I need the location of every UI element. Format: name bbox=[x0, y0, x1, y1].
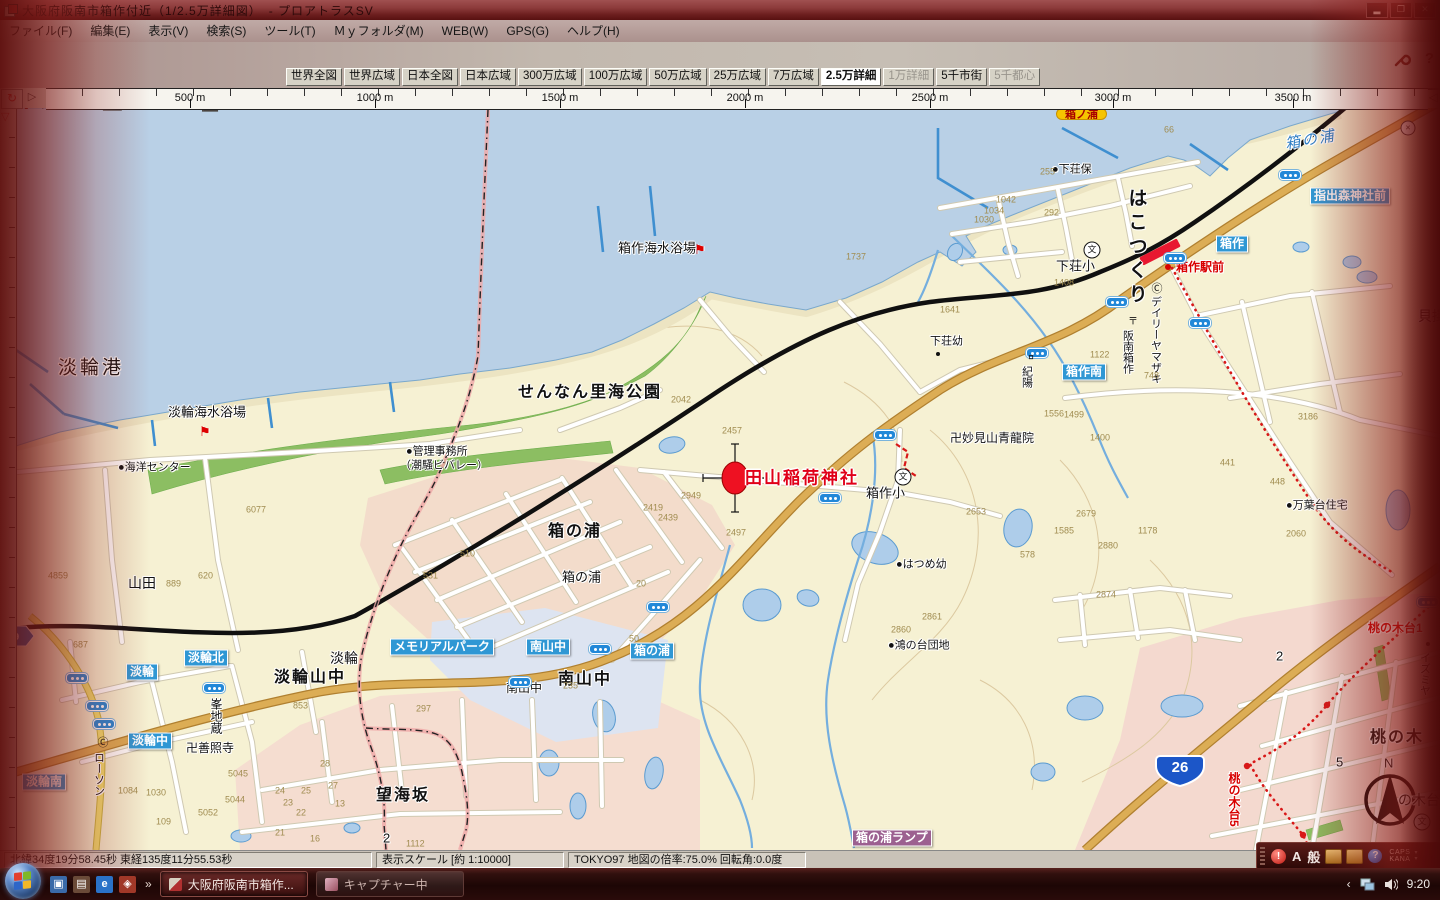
map-labels-layer: 淡輪港淡輪海水浴場箱作海水浴場せんなん里海公園●海洋センター●管理事務所（潮騒ビ… bbox=[0, 108, 1440, 850]
ime-conversion-mode[interactable]: 般 bbox=[1307, 847, 1320, 866]
lot-number: 5052 bbox=[198, 809, 218, 818]
lot-number: 292 bbox=[1044, 209, 1059, 218]
map-label: 2 bbox=[383, 832, 390, 845]
facility-dot-icon bbox=[1426, 642, 1430, 646]
busstop-badge: 指出森神社前 bbox=[1310, 188, 1390, 205]
lot-number: 1556 bbox=[1044, 410, 1064, 419]
bus-stop-icon bbox=[1106, 297, 1128, 307]
help-icon[interactable]: ? bbox=[1425, 50, 1434, 68]
lot-number: 24 bbox=[275, 787, 285, 796]
map-label: （潮騒ビバレー） bbox=[400, 461, 488, 472]
lot-number: 66 bbox=[1164, 126, 1174, 135]
bus-stop-icon bbox=[1164, 253, 1186, 263]
beach-flag-icon: ⚑ bbox=[694, 242, 706, 258]
menu-item-5[interactable]: Ｍｙフォルダ(M) bbox=[325, 21, 433, 42]
gps-point-icon: × bbox=[1401, 121, 1416, 136]
scale-tab-1万詳細: 1万詳細 bbox=[883, 68, 934, 86]
taskbar: ▣ ▤ e ◈ » 大阪府阪南市箱作...キャプチャー中 ‹ 9:20 bbox=[0, 868, 1440, 900]
map-label: ●鴻の台団地 bbox=[888, 641, 950, 652]
lot-number: 578 bbox=[1020, 551, 1035, 560]
lot-number: 1084 bbox=[118, 787, 138, 796]
internet-explorer-icon[interactable]: e bbox=[96, 876, 113, 893]
busstop-badge: 淡輪南 bbox=[22, 774, 66, 791]
lot-number: 28 bbox=[320, 760, 330, 769]
scale-tab-300万広域[interactable]: 300万広域 bbox=[518, 68, 582, 86]
lot-number: 21 bbox=[275, 829, 285, 838]
lot-number: 853 bbox=[293, 702, 308, 711]
scale-tab-bar: 世界全図世界広域日本全図日本広域300万広域100万広域50万広域25万広域7万… bbox=[286, 68, 1042, 86]
lot-number: 2880 bbox=[1098, 542, 1118, 551]
school-icon: 文 bbox=[1414, 814, 1431, 831]
ime-pad-icon[interactable] bbox=[1346, 849, 1363, 864]
station-front-dot-icon bbox=[1165, 264, 1171, 270]
lot-number: 1030 bbox=[974, 216, 994, 225]
scale-tab-50万広域[interactable]: 50万広域 bbox=[649, 68, 706, 86]
beach-flag-icon: ⚑ bbox=[199, 424, 211, 440]
task-icon bbox=[169, 878, 182, 891]
map-label: ●管理事務所 bbox=[406, 447, 468, 458]
lot-number: 1499 bbox=[1064, 411, 1084, 420]
lot-number: 2060 bbox=[1286, 530, 1306, 539]
menu-item-7[interactable]: GPS(G) bbox=[497, 21, 558, 42]
busstop-badge: 南山中 bbox=[526, 639, 570, 656]
school-icon: 文 bbox=[1084, 242, 1101, 259]
map-label: 下荘小 bbox=[1056, 260, 1095, 273]
map-label: ●万葉台住宅 bbox=[1286, 501, 1348, 512]
map-label: 桃の木台1 bbox=[1368, 622, 1423, 634]
lot-number: 510 bbox=[460, 550, 475, 559]
scale-tab-100万広域[interactable]: 100万広域 bbox=[584, 68, 648, 86]
pan-right-button[interactable]: ▷ bbox=[24, 89, 40, 107]
lot-number: 2497 bbox=[726, 529, 746, 538]
map-label: ●海洋センター bbox=[118, 463, 191, 474]
convenience-store-icon: Ⓒ bbox=[98, 734, 109, 750]
task-icon bbox=[325, 878, 338, 891]
media-icon[interactable]: ◈ bbox=[119, 876, 136, 893]
convenience-store-icon: Ⓒ bbox=[1152, 280, 1163, 296]
map-label: 山田 bbox=[128, 576, 156, 590]
scale-tab-5千市街[interactable]: 5千市街 bbox=[936, 68, 987, 86]
app-icon bbox=[4, 4, 17, 17]
title-bar: 大阪府阪南市箱作付近（1/2.5万詳細図） - プロアトラスSV ▂ ❐ ✕ bbox=[0, 0, 1440, 20]
lot-number: 16 bbox=[310, 835, 320, 844]
lot-number: 1042 bbox=[996, 196, 1016, 205]
map-label: の木台 bbox=[1398, 793, 1440, 807]
lot-number: 2874 bbox=[1096, 591, 1116, 600]
map-label: 卍妙見山青龍院 bbox=[950, 432, 1034, 444]
map-label: 淡輪 bbox=[330, 651, 358, 665]
lot-number: 23 bbox=[283, 799, 293, 808]
lot-number: 25 bbox=[301, 787, 311, 796]
vertical-ruler bbox=[0, 108, 17, 850]
map-viewport[interactable]: 2659 淡輪港淡輪海水浴場箱作海水浴場せんなん里海公園●海洋センター●管理事務… bbox=[0, 108, 1440, 850]
map-label: 貝掛 bbox=[1418, 309, 1440, 323]
lot-number: 448 bbox=[1270, 478, 1285, 487]
task-button-1[interactable]: キャプチャー中 bbox=[316, 871, 464, 897]
lot-number: 1408 bbox=[1054, 279, 1074, 288]
ime-language-bar: ! A 般 ? CAPS KANA ▾▾ bbox=[1256, 842, 1440, 870]
busstop-badge: 箱の浦ランプ bbox=[852, 830, 932, 847]
lot-number: 109 bbox=[156, 818, 171, 827]
menu-bar: ファイル(F)編集(E)表示(V)検索(S)ツール(T)Ｍｙフォルダ(M)WEB… bbox=[0, 20, 1440, 43]
kana-indicator[interactable]: KANA bbox=[1389, 856, 1410, 863]
tray-collapse-icon[interactable]: ‹ bbox=[1347, 877, 1351, 891]
map-label: 箱の浦 bbox=[548, 524, 602, 540]
bus-stop-icon bbox=[203, 683, 225, 693]
menu-item-1[interactable]: 編集(E) bbox=[81, 21, 139, 42]
maximize-button[interactable]: ❐ bbox=[1390, 2, 1412, 18]
menu-item-6[interactable]: WEB(W) bbox=[433, 21, 498, 42]
lot-number: 1178 bbox=[1138, 527, 1157, 536]
lot-number: 2457 bbox=[722, 427, 742, 436]
map-label: ●はつめ幼 bbox=[896, 560, 947, 571]
bus-stop-icon bbox=[1417, 597, 1439, 607]
bus-stop-icon bbox=[66, 673, 88, 683]
busstop-badge: 箱作南 bbox=[1062, 364, 1106, 381]
map-label: 2 bbox=[1276, 650, 1283, 663]
ime-grip[interactable] bbox=[1260, 847, 1265, 865]
busstop-badge: 箱の浦 bbox=[630, 643, 674, 660]
lot-number: 1112 bbox=[406, 840, 425, 849]
network-icon[interactable] bbox=[1360, 878, 1375, 891]
lot-number: 6077 bbox=[246, 506, 266, 515]
busstop-badge: 箱作 bbox=[1216, 236, 1248, 253]
lot-number: 441 bbox=[1220, 459, 1235, 468]
ime-minimize-icon[interactable]: ▾▾ bbox=[1414, 850, 1417, 862]
ime-help-icon[interactable]: ? bbox=[1368, 849, 1382, 863]
show-desktop-icon[interactable]: ▣ bbox=[50, 876, 67, 893]
bank-icon: ¤ bbox=[1028, 353, 1034, 364]
start-button[interactable] bbox=[5, 863, 41, 899]
status-scale: 表示スケール [約 1:10000] bbox=[376, 852, 564, 868]
lot-number: 2861 bbox=[922, 613, 942, 622]
map-label: 箱の浦 bbox=[1284, 128, 1337, 152]
minimize-button[interactable]: ▂ bbox=[1366, 2, 1388, 18]
map-label: 箱作海水浴場 bbox=[618, 242, 696, 255]
scale-tab-7万広域[interactable]: 7万広域 bbox=[768, 68, 819, 86]
lot-number: 2949 bbox=[681, 492, 701, 501]
busstop-badge: 淡輪中 bbox=[128, 733, 172, 750]
bus-stop-icon bbox=[874, 430, 896, 440]
menu-item-4[interactable]: ツール(T) bbox=[255, 21, 324, 42]
map-label: 阪南箱作 bbox=[1122, 330, 1133, 374]
lot-number: 1122 bbox=[1090, 351, 1109, 360]
map-label: 桃の木台5 bbox=[1228, 772, 1240, 827]
lot-number: 5044 bbox=[225, 796, 245, 805]
ime-tools-icon[interactable] bbox=[1325, 849, 1342, 864]
lot-number: 3186 bbox=[1298, 413, 1318, 422]
menu-item-2[interactable]: 表示(V) bbox=[139, 21, 197, 42]
map-label: 桃の木 bbox=[1370, 730, 1424, 746]
bus-stop-icon bbox=[589, 644, 611, 654]
lot-number: 1030 bbox=[146, 789, 166, 798]
lot-number: 2419 bbox=[643, 504, 663, 513]
map-label: 5 bbox=[1336, 756, 1343, 769]
scale-tab-日本全図[interactable]: 日本全図 bbox=[402, 68, 458, 86]
map-label: イズミヤ bbox=[1419, 652, 1430, 696]
map-label: 峯地蔵 bbox=[210, 698, 222, 734]
pan-down-icon[interactable]: ▽ bbox=[1, 110, 9, 123]
bus-stop-icon bbox=[819, 493, 841, 503]
ime-status-icon[interactable]: ! bbox=[1271, 849, 1286, 864]
menu-item-8[interactable]: ヘルプ(H) bbox=[558, 21, 629, 42]
post-office-icon: 〒 bbox=[1128, 313, 1138, 328]
bus-stop-icon bbox=[1189, 318, 1211, 328]
lot-number: 13 bbox=[335, 800, 345, 809]
busstop-badge: メモリアルパーク bbox=[390, 639, 494, 656]
caps-indicator[interactable]: CAPS bbox=[1389, 849, 1410, 856]
wrench-icon[interactable] bbox=[1393, 50, 1411, 68]
map-label: 紀陽 bbox=[1021, 366, 1032, 388]
status-bar: 北緯34度19分58.45秒 東経135度11分55.53秒表示スケール [約 … bbox=[0, 850, 1440, 869]
lot-number: 687 bbox=[73, 641, 88, 650]
lot-number: 1737 bbox=[846, 253, 866, 262]
map-label: ローソン bbox=[93, 752, 104, 796]
rotate-button[interactable]: ↻ bbox=[1, 89, 23, 109]
lot-number: 2860 bbox=[891, 626, 911, 635]
ruler-left-arrow-icon[interactable]: ◁ bbox=[1429, 90, 1438, 104]
scale-tab-2.5万詳細[interactable]: 2.5万詳細 bbox=[821, 68, 882, 86]
task-button-0[interactable]: 大阪府阪南市箱作... bbox=[160, 871, 308, 897]
bus-stop-icon bbox=[93, 719, 115, 729]
scale-tab-25万広域[interactable]: 25万広域 bbox=[709, 68, 766, 86]
busstop-badge: 淡輪 bbox=[126, 664, 158, 681]
lot-number: 889 bbox=[166, 580, 181, 589]
map-label: 淡輪海水浴場 bbox=[168, 406, 246, 419]
lot-number: 27 bbox=[328, 782, 338, 791]
map-label: 卍善照寺 bbox=[186, 742, 234, 754]
ruler-corner: ↻ ▷ bbox=[0, 88, 46, 108]
lot-number: 297 bbox=[416, 705, 431, 714]
busstop-badge: 淡輪北 bbox=[184, 650, 228, 667]
facility-dot-icon bbox=[936, 352, 940, 356]
lot-number: 531 bbox=[423, 572, 438, 581]
lot-number: 20 bbox=[636, 580, 646, 589]
lot-number: 1641 bbox=[940, 306, 960, 315]
lot-number: 22 bbox=[296, 809, 306, 818]
ime-input-mode[interactable]: A bbox=[1292, 849, 1301, 864]
lot-number: 2042 bbox=[671, 396, 691, 405]
map-label: 箱の浦 bbox=[562, 571, 601, 584]
scale-tab-日本広域[interactable]: 日本広域 bbox=[460, 68, 516, 86]
close-button[interactable]: ✕ bbox=[1414, 2, 1436, 18]
quicklaunch-overflow-icon[interactable]: » bbox=[145, 877, 152, 891]
lot-number: 255 bbox=[1040, 168, 1055, 177]
bus-stop-icon bbox=[647, 602, 669, 612]
map-label: 田山稲荷神社 bbox=[745, 470, 859, 487]
lot-number: 2439 bbox=[658, 514, 678, 523]
map-label: はこつくり bbox=[1127, 188, 1146, 308]
bus-stop-icon bbox=[509, 677, 531, 687]
lot-number: 1400 bbox=[1090, 434, 1110, 443]
menu-item-3[interactable]: 検索(S) bbox=[197, 21, 255, 42]
volume-icon[interactable] bbox=[1384, 878, 1398, 891]
scale-tab-世界広域[interactable]: 世界広域 bbox=[344, 68, 400, 86]
lot-number: 748 bbox=[1144, 372, 1159, 381]
map-label: 淡輪山中 bbox=[274, 670, 346, 686]
map-label: ●下荘保 bbox=[1052, 165, 1092, 176]
lot-number: 620 bbox=[198, 572, 213, 581]
map-label: 淡輪港 bbox=[58, 359, 124, 378]
bus-stop-icon bbox=[86, 701, 108, 711]
scale-tab-世界全図[interactable]: 世界全図 bbox=[286, 68, 342, 86]
window-title: 大阪府阪南市箱作付近（1/2.5万詳細図） - プロアトラスSV bbox=[22, 2, 374, 19]
horizontal-ruler: 500 m1000 m1500 m2000 m2500 m3000 m3500 … bbox=[46, 88, 1428, 110]
lot-number: 4859 bbox=[48, 572, 68, 581]
lot-number: 2653 bbox=[966, 508, 986, 517]
map-label: 下荘幼 bbox=[930, 337, 963, 348]
bus-stop-icon bbox=[1279, 170, 1301, 180]
lot-number: 5045 bbox=[228, 770, 248, 779]
taskbar-clock[interactable]: 9:20 bbox=[1407, 877, 1430, 891]
map-label: せんなん里海公園 bbox=[518, 385, 662, 401]
status-coords: 北緯34度19分58.45秒 東経135度11分55.53秒 bbox=[4, 852, 372, 868]
map-label: N bbox=[1384, 757, 1393, 770]
scale-tab-5千都心: 5千都心 bbox=[989, 68, 1040, 86]
folder-icon[interactable]: ▤ bbox=[73, 876, 90, 893]
lot-number: 235 bbox=[563, 682, 578, 691]
status-datum: TOKYO97 地図の倍率:75.0% 回転角:0.0度 bbox=[568, 852, 806, 868]
map-label: 箱作小 bbox=[866, 487, 905, 500]
school-icon: 文 bbox=[895, 469, 912, 486]
menu-item-0[interactable]: ファイル(F) bbox=[0, 21, 81, 42]
lot-number: 2679 bbox=[1076, 510, 1096, 519]
map-label: 望海坂 bbox=[376, 788, 430, 804]
lot-number: 1585 bbox=[1054, 527, 1074, 536]
desktop: 大阪府阪南市箱作付近（1/2.5万詳細図） - プロアトラスSV ▂ ❐ ✕ フ… bbox=[0, 0, 1440, 900]
